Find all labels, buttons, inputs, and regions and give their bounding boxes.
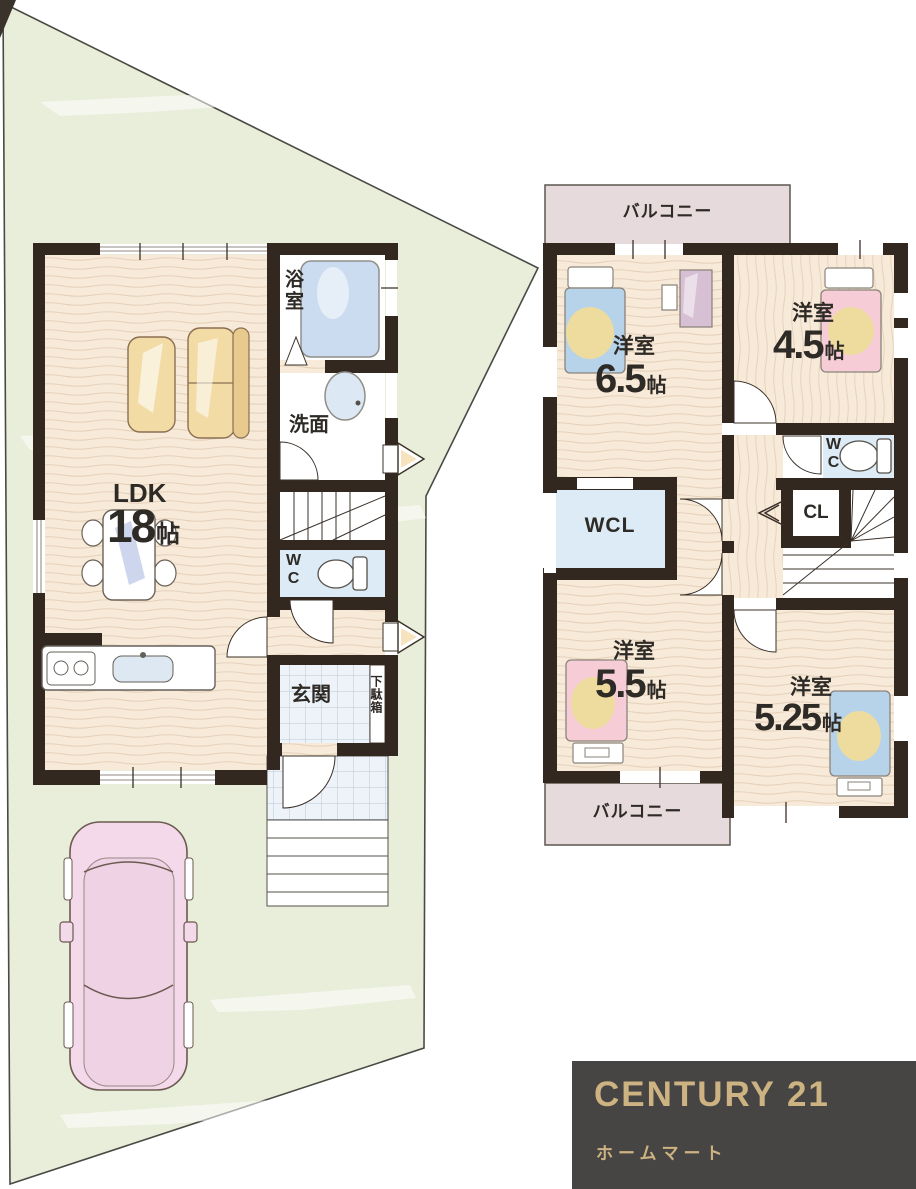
- second-floor-plan: バルコニー 洋室 6.5帖 洋室 4.5帖 WC WCL CL 洋室 5.5帖 …: [543, 183, 910, 848]
- balcony-bottom-label: バルコニー: [545, 803, 730, 820]
- bedroom525-size: 5.25帖: [754, 699, 842, 737]
- sofa: [128, 328, 249, 438]
- bedroom55-label: 洋室: [613, 641, 655, 662]
- kitchen-sink: [113, 656, 173, 682]
- entrance-label: 玄関: [291, 685, 331, 705]
- toilet-icon-2f: [840, 439, 891, 473]
- company-name: CENTURY 21: [594, 1075, 830, 1115]
- wcl-label: WCL: [555, 515, 665, 536]
- bedroom65-size: 6.5帖: [595, 359, 667, 399]
- bedroom55-size: 5.5帖: [595, 664, 667, 704]
- wc-label-1f: WC: [285, 552, 301, 588]
- cl-label: CL: [793, 503, 839, 522]
- store-name: ホームマート: [596, 1139, 728, 1164]
- bedroom525-label: 洋室: [790, 677, 832, 698]
- shoe-cabinet-label: 下駄箱: [370, 675, 382, 714]
- bedroom45-label: 洋室: [792, 303, 834, 324]
- stairs-floor: [280, 492, 385, 540]
- first-floor-drawing: [33, 243, 398, 908]
- first-floor-plan: 浴室 洗面 LDK 18帖 WC 玄関 下駄箱: [33, 243, 398, 908]
- porch-steps: [267, 820, 388, 906]
- floorplan-page: 浴室 洗面 LDK 18帖 WC 玄関 下駄箱: [0, 0, 916, 1189]
- bedroom45-size: 4.5帖: [773, 325, 845, 365]
- century21-logo: CENTURY 21 ホームマート: [572, 1061, 916, 1189]
- bedroom65-label: 洋室: [613, 336, 655, 357]
- bathtub: [301, 261, 379, 357]
- balcony-top-label: バルコニー: [545, 203, 790, 220]
- wc2-door: [783, 435, 823, 478]
- bath-label: 浴室: [283, 269, 302, 313]
- wc-label-2f: WC: [825, 436, 841, 472]
- ldk-size-label: 18帖: [107, 503, 180, 549]
- washroom-sink: [325, 372, 365, 420]
- toilet-icon-1f: [318, 557, 367, 590]
- washroom-label: 洗面: [289, 415, 329, 435]
